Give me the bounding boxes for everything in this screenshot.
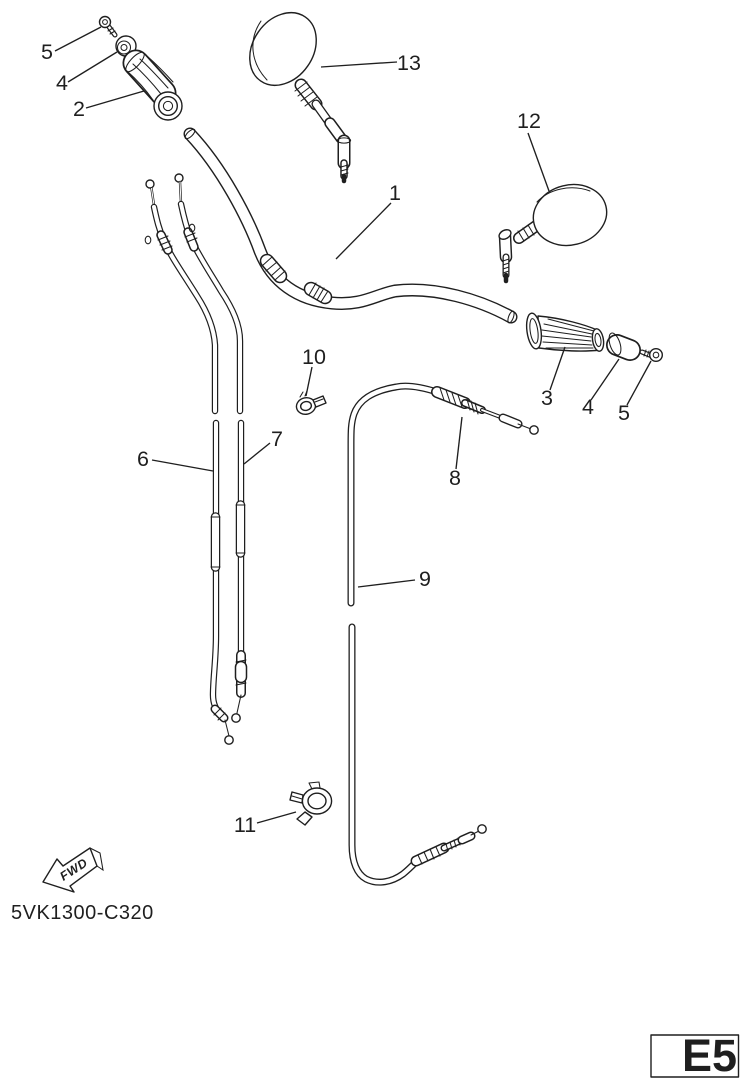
callout-cap-left: 4 [56, 71, 68, 95]
clutch-cable-end-upper [437, 388, 538, 434]
leader-mirror-left [321, 62, 397, 67]
fwd-arrow: FWD [43, 848, 103, 892]
callout-cap-right: 4 [582, 395, 594, 419]
leader-screw-left [55, 27, 101, 51]
throttle-cable-1 [145, 180, 233, 744]
cable-clamp-lower [290, 782, 332, 825]
callout-clamp-upper: 10 [302, 345, 326, 369]
page-code-box: E5 [651, 1030, 739, 1081]
leader-clamp-lower [257, 812, 296, 823]
callout-clamp-lower: 11 [234, 813, 256, 837]
right-grip-end-screw [642, 349, 662, 362]
clutch-cable-end-lower [416, 825, 486, 864]
parts-diagram-page: 5 4 2 13 1 12 3 4 5 10 6 7 8 9 11 FWD 5V… [0, 0, 740, 1091]
leader-cable-7 [244, 443, 270, 464]
throttle-cable-2 [175, 174, 246, 722]
leader-cable-9 [358, 580, 415, 587]
callout-mirror-right: 12 [517, 109, 541, 133]
parts-diagram: 5 4 2 13 1 12 3 4 5 10 6 7 8 9 11 FWD 5V… [0, 0, 740, 1091]
mirror-right [497, 177, 613, 281]
leader-grip-right [550, 347, 565, 390]
leader-clamp-upper [306, 367, 312, 396]
leader-cap-right [591, 359, 619, 400]
callout-cable-6: 6 [137, 447, 149, 471]
callout-cable-7: 7 [271, 427, 283, 451]
leader-cap-left [68, 52, 117, 82]
handlebar-knurl-band-1 [262, 257, 285, 280]
right-grip [525, 312, 606, 352]
left-grip-end-screw [100, 17, 116, 36]
callout-grip-left: 2 [73, 97, 85, 121]
callout-mirror-left: 13 [397, 51, 421, 75]
callout-screw-right: 5 [618, 401, 630, 425]
cable-clamp-upper [295, 391, 326, 416]
leader-cable-end-8 [456, 417, 462, 469]
left-grip [123, 50, 182, 120]
right-grip-end-cap [607, 332, 630, 357]
leader-mirror-right [528, 133, 549, 191]
leader-grip-left [86, 91, 144, 108]
leader-handlebar [336, 203, 391, 259]
callout-cable-9: 9 [419, 567, 431, 591]
mirror-left [236, 0, 351, 181]
leader-cable-6 [152, 460, 213, 471]
leader-screw-right [627, 361, 651, 405]
callout-grip-right: 3 [541, 386, 553, 410]
callout-cable-end-8: 8 [449, 466, 461, 490]
part-code: 5VK1300-C320 [11, 902, 154, 924]
clutch-cable [351, 386, 486, 882]
callout-screw-left: 5 [41, 40, 53, 64]
page-code: E5 [682, 1030, 737, 1081]
callouts: 5 4 2 13 1 12 3 4 5 10 6 7 8 9 11 [41, 40, 630, 837]
callout-handlebar: 1 [389, 181, 401, 205]
